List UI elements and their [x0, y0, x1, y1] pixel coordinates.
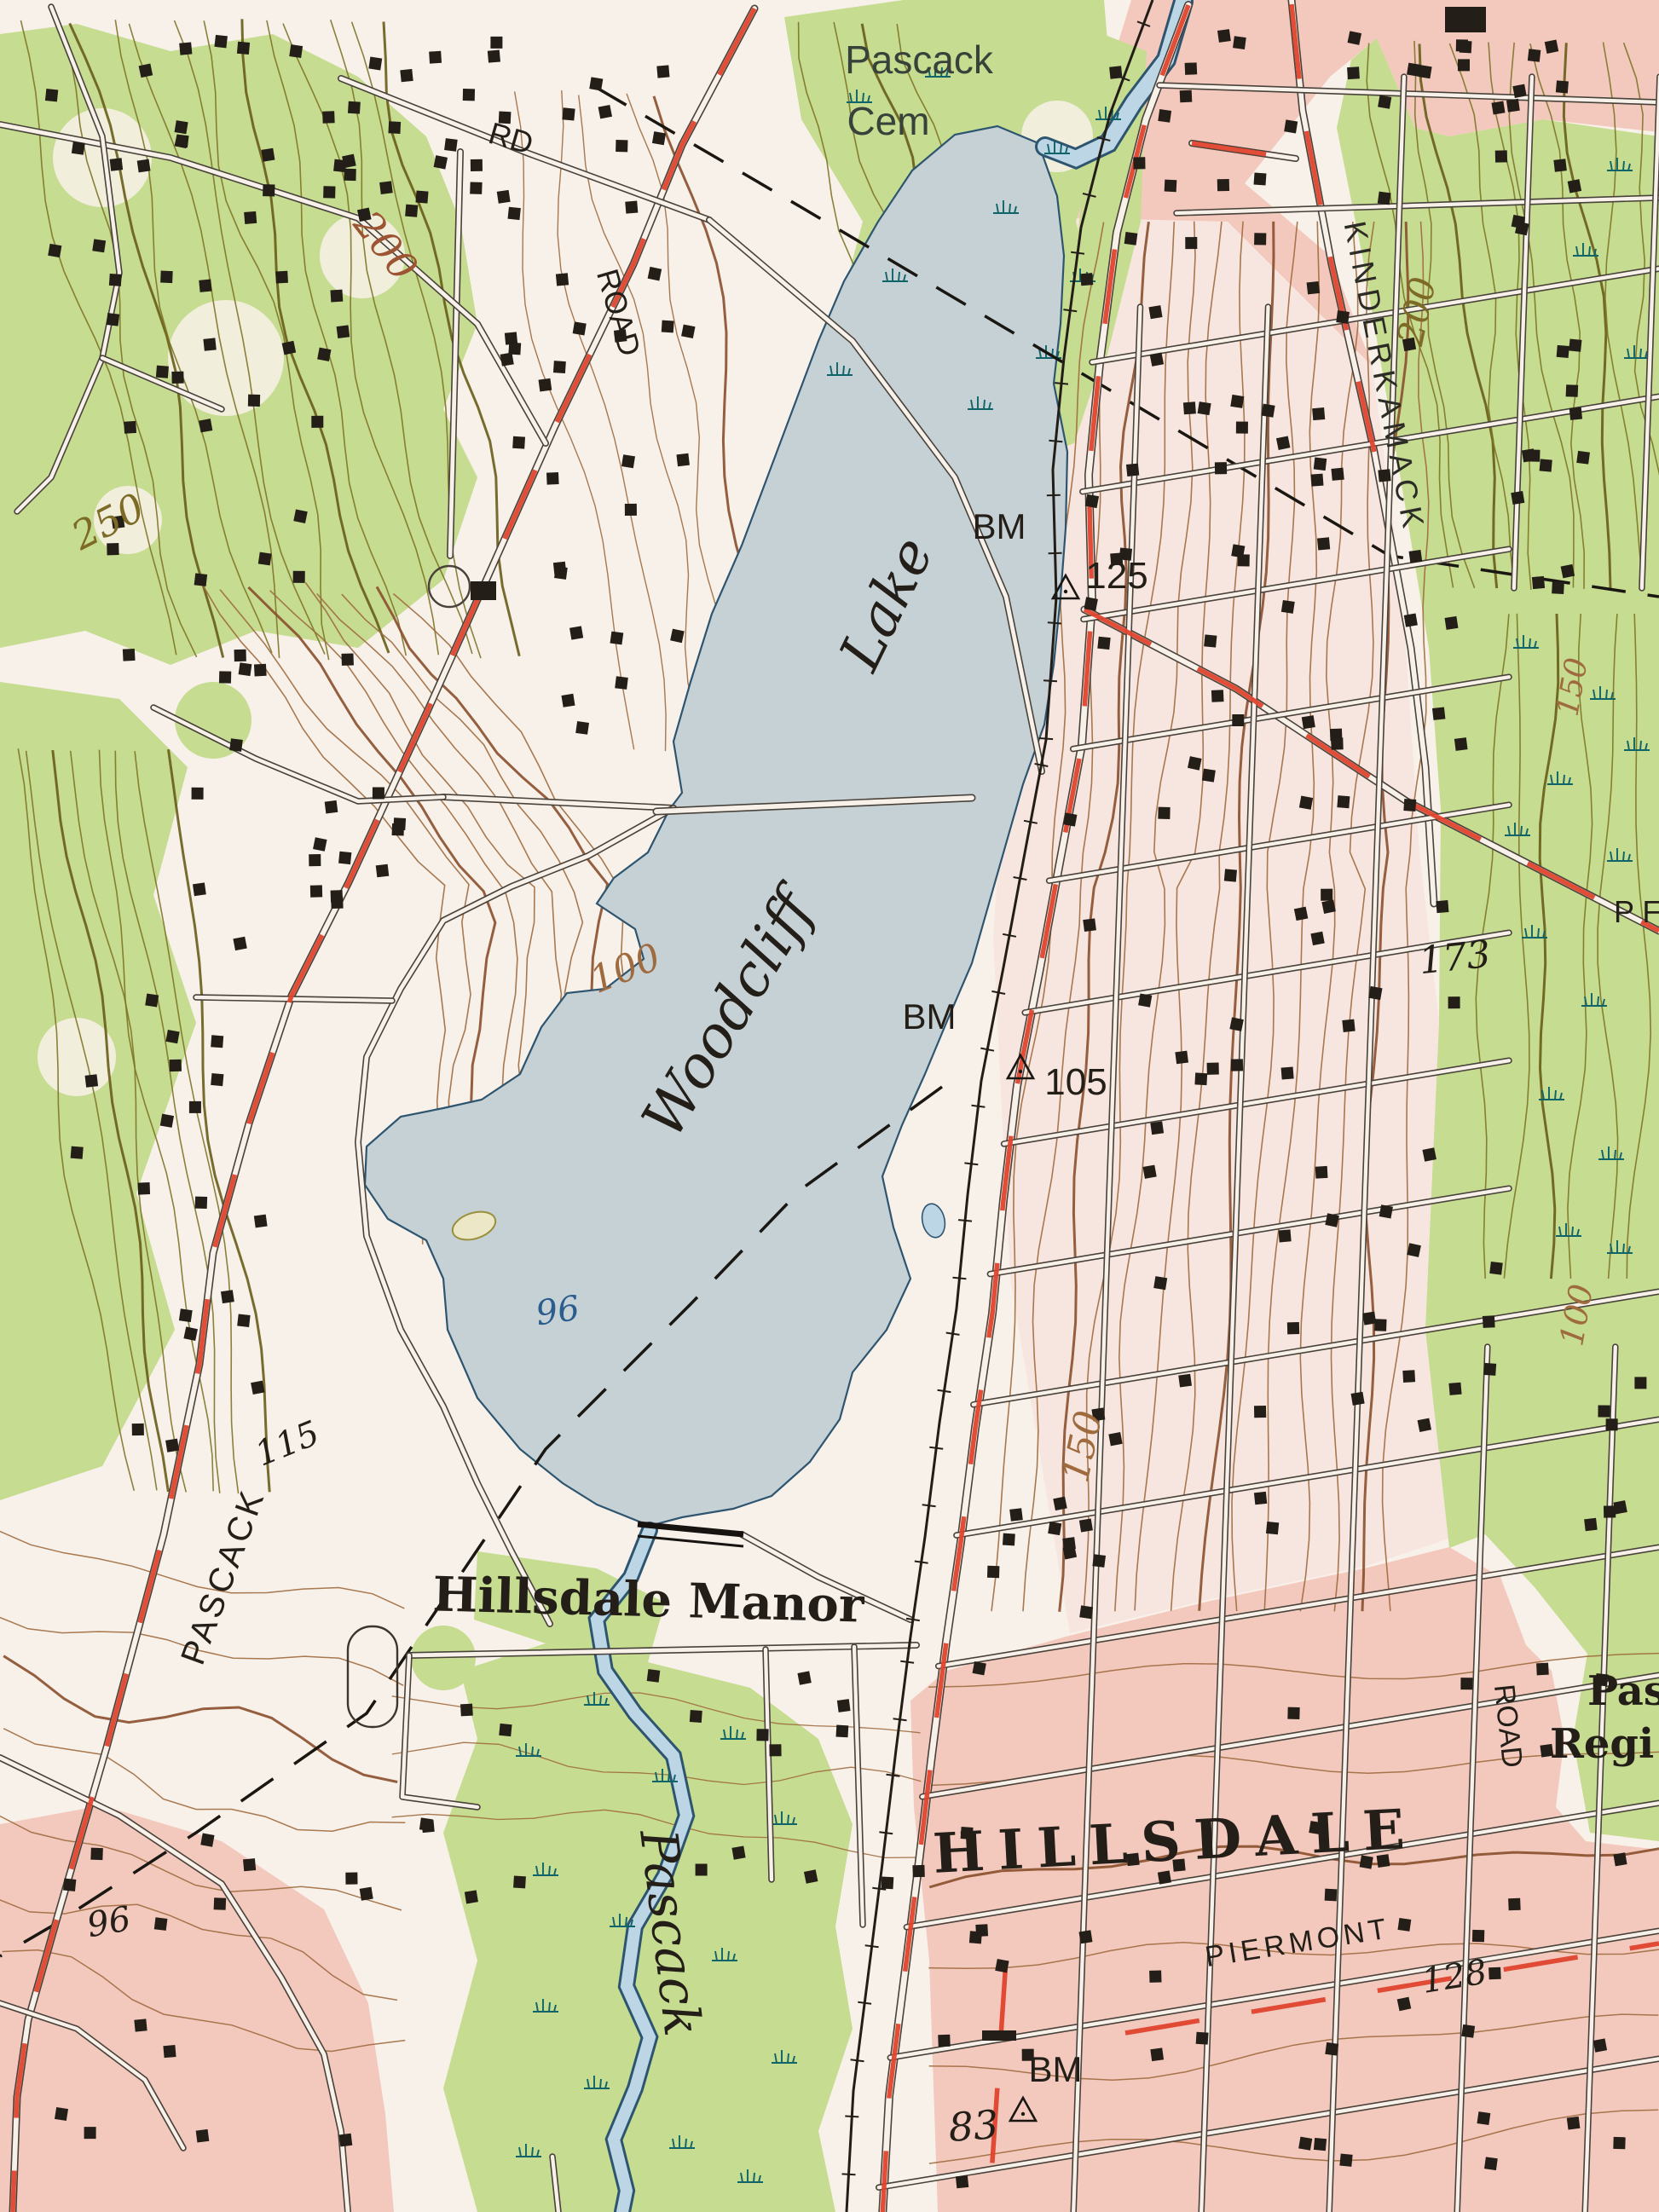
spot-elevation-83: 83 [947, 2101, 1000, 2151]
benchmark-125-value: 125 [1085, 555, 1147, 597]
topo-map-canvas: Pascack Cem KINDERKAMACK RD ROAD ROAD 20… [0, 0, 1659, 2212]
benchmark-105-value: 105 [1044, 1061, 1107, 1103]
spot-elevation-96-southwest: 96 [84, 1899, 134, 1945]
truncated-road-label: P F [1614, 894, 1659, 929]
place-label-hillsdale-manor: Hillsdale Manor [432, 1566, 866, 1633]
cemetery-label-line2: Cem [847, 99, 929, 143]
lake-elevation-96: 96 [534, 1289, 582, 1334]
benchmark-83-bm: BM [1029, 2049, 1083, 2089]
spot-elevation-173: 173 [1417, 933, 1493, 983]
cemetery-label-line1: Pascack [845, 38, 994, 82]
benchmark-105-bm: BM [903, 996, 957, 1037]
truncated-label-pas: Pas [1587, 1667, 1659, 1715]
benchmark-125-bm: BM [973, 506, 1026, 546]
topo-map-svg: Pascack Cem KINDERKAMACK RD ROAD ROAD 20… [0, 0, 1659, 2212]
truncated-label-regi: Regi [1550, 1720, 1654, 1768]
